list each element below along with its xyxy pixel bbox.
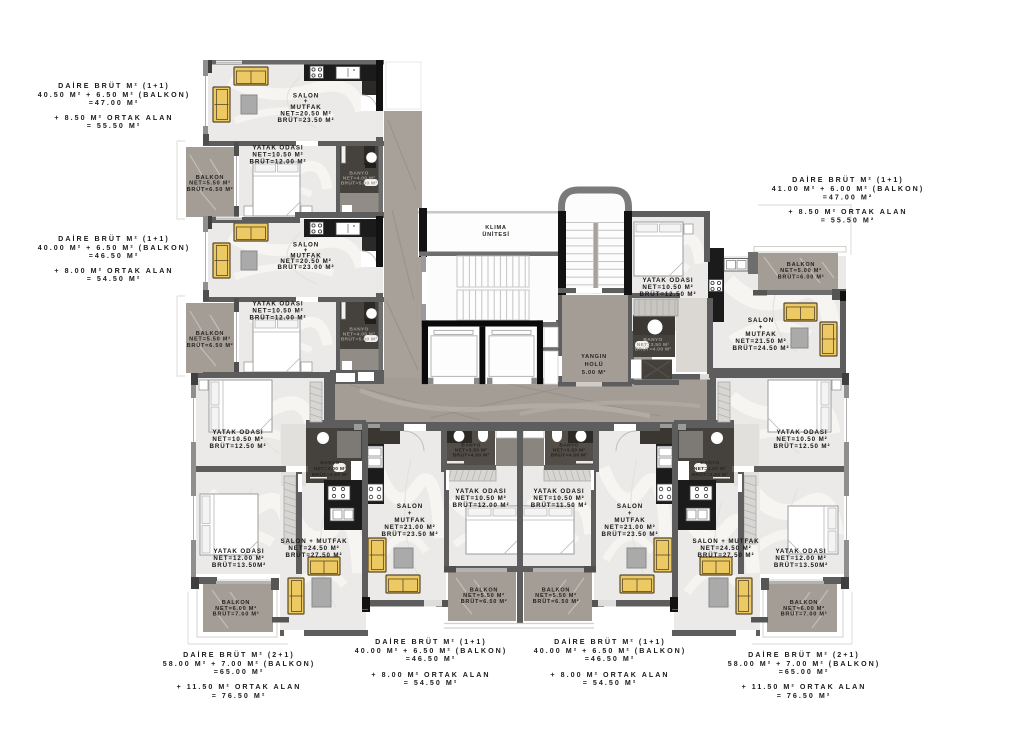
- svg-text:BRÜT=27.50 M²: BRÜT=27.50 M²: [698, 552, 755, 559]
- svg-text:BANYO: BANYO: [700, 460, 719, 466]
- svg-text:YATAK ODASI: YATAK ODASI: [642, 277, 693, 284]
- svg-text:58.00 M² + 7.00 M² (BALKON): 58.00 M² + 7.00 M² (BALKON): [728, 660, 881, 668]
- svg-text:+ 8.00 M² ORTAK ALAN: + 8.00 M² ORTAK ALAN: [54, 267, 173, 275]
- svg-text:40.00 M² + 6.50 M² (BALKON): 40.00 M² + 6.50 M² (BALKON): [534, 647, 687, 655]
- svg-text:DAİRE BRÜT M² (1+1): DAİRE BRÜT M² (1+1): [58, 234, 170, 243]
- svg-text:BRÜT=23.50 M²: BRÜT=23.50 M²: [602, 531, 659, 538]
- svg-text:YANGIN: YANGIN: [581, 354, 607, 360]
- svg-text:41.00 M² + 6.00 M² (BALKON): 41.00 M² + 6.00 M² (BALKON): [772, 185, 925, 193]
- svg-text:BRÜT=23.50 M²: BRÜT=23.50 M²: [278, 117, 335, 124]
- svg-text:NET=5.00 M²: NET=5.00 M²: [780, 267, 822, 274]
- svg-text:DAİRE BRÜT M² (1+1): DAİRE BRÜT M² (1+1): [792, 175, 904, 184]
- svg-text:NET=10.50 M²: NET=10.50 M²: [533, 495, 584, 502]
- svg-text:=46.50 M²: =46.50 M²: [89, 252, 140, 260]
- svg-text:5.00 M²: 5.00 M²: [582, 369, 606, 376]
- svg-text:BRÜT=4.50 M²: BRÜT=4.50 M²: [551, 452, 588, 459]
- svg-text:+ 8.50 M² ORTAK ALAN: + 8.50 M² ORTAK ALAN: [788, 208, 907, 216]
- svg-text:NET=10.50 M²: NET=10.50 M²: [455, 495, 506, 502]
- svg-text:YATAK ODASI: YATAK ODASI: [252, 301, 303, 308]
- svg-text:BRÜT=23.00 M²: BRÜT=23.00 M²: [278, 264, 335, 271]
- svg-text:+: +: [408, 510, 413, 517]
- svg-text:BRÜT=4.50 M²: BRÜT=4.50 M²: [692, 471, 729, 478]
- svg-text:NET=12.00 M²: NET=12.00 M²: [775, 555, 826, 562]
- svg-text:BRÜT=12.00 M²: BRÜT=12.00 M²: [250, 315, 307, 322]
- svg-text:YATAK ODASI: YATAK ODASI: [533, 488, 584, 495]
- svg-text:NET=5.50 M²: NET=5.50 M²: [189, 336, 231, 343]
- svg-text:+ 8.00 M² ORTAK ALAN: + 8.00 M² ORTAK ALAN: [550, 671, 669, 679]
- svg-text:BRÜT=7.00 M²: BRÜT=7.00 M²: [781, 611, 828, 618]
- svg-text:NET=4.00 M²: NET=4.00 M²: [694, 466, 727, 472]
- svg-text:BRÜT=6.50 M²: BRÜT=6.50 M²: [187, 342, 234, 349]
- svg-text:= 54.50 M²: = 54.50 M²: [583, 679, 638, 687]
- svg-text:NET=24.50 M²: NET=24.50 M²: [700, 545, 751, 552]
- svg-text:NET=21.00 M²: NET=21.00 M²: [384, 524, 435, 531]
- svg-text:NET=21.00 M²: NET=21.00 M²: [604, 524, 655, 531]
- svg-text:+: +: [759, 324, 764, 331]
- svg-text:BRÜT=11.50 M²: BRÜT=11.50 M²: [531, 502, 588, 509]
- svg-text:BRÜT=4.50 M²: BRÜT=4.50 M²: [312, 471, 349, 478]
- svg-text:+ 11.50 M² ORTAK ALAN: + 11.50 M² ORTAK ALAN: [177, 683, 302, 691]
- svg-text:=47.00 M²: =47.00 M²: [823, 194, 874, 202]
- svg-text:=65.00 M²: =65.00 M²: [214, 668, 265, 676]
- svg-text:+ 8.00 M² ORTAK ALAN: + 8.00 M² ORTAK ALAN: [371, 671, 490, 679]
- svg-text:DAİRE BRÜT M² (1+1): DAİRE BRÜT M² (1+1): [58, 81, 170, 90]
- svg-text:= 54.50 M²: = 54.50 M²: [87, 275, 142, 283]
- svg-text:BRÜT=12.00 M²: BRÜT=12.00 M²: [453, 502, 510, 509]
- svg-text:BRÜT=23.50 M²: BRÜT=23.50 M²: [382, 531, 439, 538]
- svg-text:SALON: SALON: [748, 317, 774, 324]
- svg-text:BRÜT=12.50 M²: BRÜT=12.50 M²: [210, 443, 267, 450]
- svg-text:NET=10.50 M²: NET=10.50 M²: [642, 284, 693, 291]
- svg-text:BRÜT=12.00 M²: BRÜT=12.00 M²: [250, 159, 307, 166]
- svg-text:DAİRE BRÜT M² (2+1): DAİRE BRÜT M² (2+1): [748, 650, 860, 659]
- svg-text:NET=12.00 M²: NET=12.00 M²: [213, 555, 264, 562]
- svg-text:BRÜT=6.00 M²: BRÜT=6.00 M²: [778, 274, 825, 281]
- svg-text:BRÜT=7.00 M²: BRÜT=7.00 M²: [213, 611, 260, 618]
- svg-text:NET=10.50 M²: NET=10.50 M²: [252, 152, 303, 159]
- svg-text:YATAK ODASI: YATAK ODASI: [212, 429, 263, 436]
- svg-text:SALON + MUTFAK: SALON + MUTFAK: [692, 538, 759, 545]
- svg-text:MUTFAK: MUTFAK: [745, 331, 776, 338]
- svg-text:SALON: SALON: [617, 503, 643, 510]
- svg-text:BRÜT=12.50 M²: BRÜT=12.50 M²: [774, 443, 831, 450]
- svg-text:BRÜT=12.50 M²: BRÜT=12.50 M²: [640, 291, 697, 298]
- svg-text:YATAK ODASI: YATAK ODASI: [455, 488, 506, 495]
- svg-text:MUTFAK: MUTFAK: [614, 517, 645, 524]
- svg-text:NET=10.50 M²: NET=10.50 M²: [776, 436, 827, 443]
- svg-text:= 55.50 M²: = 55.50 M²: [821, 217, 876, 225]
- svg-text:SALON + MUTFAK: SALON + MUTFAK: [280, 538, 347, 545]
- svg-text:YATAK ODASI: YATAK ODASI: [213, 548, 264, 555]
- svg-text:BRÜT=13.50M²: BRÜT=13.50M²: [774, 562, 828, 569]
- svg-text:DAİRE BRÜT M² (1+1): DAİRE BRÜT M² (1+1): [554, 637, 666, 646]
- svg-text:NET=4.00 M²: NET=4.00 M²: [314, 466, 347, 472]
- svg-text:NET=21.50 M²: NET=21.50 M²: [735, 338, 786, 345]
- svg-text:BRÜT=5.00 M²: BRÜT=5.00 M²: [341, 180, 378, 187]
- svg-text:40.50 M² + 6.50 M² (BALKON): 40.50 M² + 6.50 M² (BALKON): [38, 91, 191, 99]
- svg-text:BRÜT=24.50 M²: BRÜT=24.50 M²: [733, 345, 790, 352]
- svg-text:BRÜT=4.50 M²: BRÜT=4.50 M²: [453, 452, 490, 459]
- svg-text:NET=5.50 M²: NET=5.50 M²: [189, 180, 231, 187]
- svg-text:NET=24.50 M²: NET=24.50 M²: [288, 545, 339, 552]
- svg-text:NET=10.50 M²: NET=10.50 M²: [252, 308, 303, 315]
- svg-text:KLIMA: KLIMA: [485, 225, 506, 231]
- svg-text:BRÜT=6.50 M²: BRÜT=6.50 M²: [461, 598, 508, 605]
- svg-text:=65.00 M²: =65.00 M²: [779, 668, 830, 676]
- svg-text:= 76.50 M²: = 76.50 M²: [777, 692, 832, 700]
- svg-text:+ 8.50 M² ORTAK ALAN: + 8.50 M² ORTAK ALAN: [54, 114, 173, 122]
- svg-text:ÜNİTESİ: ÜNİTESİ: [482, 231, 509, 238]
- svg-text:= 76.50 M²: = 76.50 M²: [212, 692, 267, 700]
- svg-text:BRÜT=5.00 M²: BRÜT=5.00 M²: [341, 336, 378, 343]
- svg-text:40.00 M² + 6.50 M² (BALKON): 40.00 M² + 6.50 M² (BALKON): [38, 244, 191, 252]
- svg-text:=46.50 M²: =46.50 M²: [585, 655, 636, 663]
- svg-text:= 55.50 M²: = 55.50 M²: [87, 122, 142, 130]
- svg-text:YATAK ODASI: YATAK ODASI: [252, 145, 303, 152]
- svg-text:40.00 M² + 6.50 M² (BALKON): 40.00 M² + 6.50 M² (BALKON): [355, 647, 508, 655]
- svg-text:+: +: [628, 510, 633, 517]
- svg-text:BRÜT=6.50 M²: BRÜT=6.50 M²: [187, 186, 234, 193]
- svg-text:SALON: SALON: [397, 503, 423, 510]
- svg-text:58.00 M² + 7.00 M² (BALKON): 58.00 M² + 7.00 M² (BALKON): [163, 660, 316, 668]
- svg-text:BRÜT=13.50M²: BRÜT=13.50M²: [212, 562, 266, 569]
- svg-text:MUTFAK: MUTFAK: [394, 517, 425, 524]
- svg-text:BANYO: BANYO: [320, 460, 339, 466]
- svg-text:=46.50 M²: =46.50 M²: [406, 655, 457, 663]
- svg-text:= 54.50 M²: = 54.50 M²: [404, 679, 459, 687]
- svg-text:BRÜT=6.50 M²: BRÜT=6.50 M²: [533, 598, 580, 605]
- svg-text:+ 11.50 M² ORTAK ALAN: + 11.50 M² ORTAK ALAN: [742, 683, 867, 691]
- svg-text:BRÜT=4.00 M²: BRÜT=4.00 M²: [635, 346, 672, 353]
- svg-text:HOLÜ: HOLÜ: [585, 361, 604, 368]
- svg-text:DAİRE BRÜT M² (2+1): DAİRE BRÜT M² (2+1): [183, 650, 295, 659]
- svg-text:YATAK ODASI: YATAK ODASI: [775, 548, 826, 555]
- svg-text:=47.00 M²: =47.00 M²: [89, 99, 140, 107]
- svg-text:NET=10.50 M²: NET=10.50 M²: [212, 436, 263, 443]
- svg-text:DAİRE BRÜT M² (1+1): DAİRE BRÜT M² (1+1): [375, 637, 487, 646]
- svg-text:BRÜT=27.50 M²: BRÜT=27.50 M²: [286, 552, 343, 559]
- svg-text:YATAK ODASI: YATAK ODASI: [776, 429, 827, 436]
